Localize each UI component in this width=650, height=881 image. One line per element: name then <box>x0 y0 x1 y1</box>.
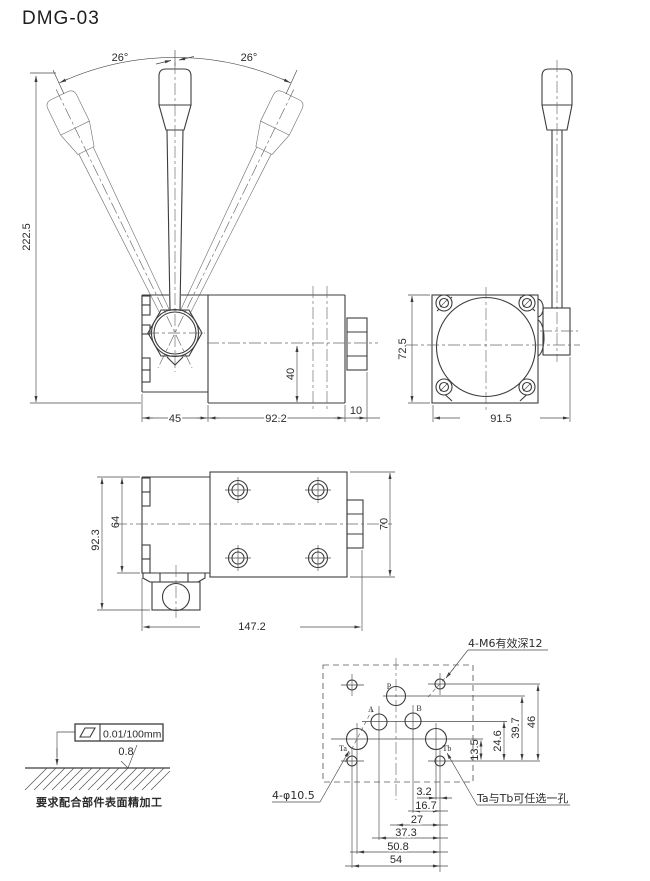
dim-39-7: 39.7 <box>510 717 522 738</box>
page-title: DMG-03 <box>22 8 100 29</box>
top-body <box>115 472 392 618</box>
surface-caption: 要求配合部件表面精加工 <box>36 795 163 809</box>
dim-top-height: 70 <box>350 472 395 577</box>
pattern-dims-vertical: 13.5 24.6 39.7 46 <box>469 685 538 761</box>
front-view: 26° 26° 222.5 <box>21 50 380 425</box>
dim-40: 40 <box>285 368 297 380</box>
dim-top-length: 147.2 <box>142 550 362 633</box>
note-m6-threads: 4-M6有效深12 <box>468 636 542 650</box>
port-label-a: A <box>368 705 374 714</box>
pattern-holes <box>347 679 447 766</box>
dim-45: 45 <box>169 413 181 425</box>
end-hex-fitting <box>347 318 367 370</box>
dim-64: 64 <box>110 516 122 528</box>
dim-overall-height: 222.5 <box>21 73 141 403</box>
dim-92-2: 92.2 <box>265 413 286 425</box>
angle-label-left: 26° <box>112 52 129 64</box>
note-ta-tb: Ta与Tb可任选一孔 <box>476 792 568 805</box>
top-view: 92.3 64 70 147.2 <box>90 472 395 633</box>
port-label-ta: Ta <box>339 744 347 753</box>
side-lever-mount <box>543 308 570 355</box>
mounting-pattern: P A B Ta Tb 13.5 24.6 39.7 46 3.2 16.7 2 <box>272 636 570 872</box>
surface-finish-note: 0.01/100mm 0.8 要求配合部件表面精加工 <box>25 724 170 809</box>
dim-side-width: 91.5 <box>433 357 570 425</box>
note-phi-holes: 4-φ10.5 <box>272 789 315 802</box>
pattern-dims-horizontal: 3.2 16.7 27 37.3 50.8 54 <box>345 786 452 866</box>
front-body <box>142 286 378 411</box>
lever-center <box>159 62 191 372</box>
drawing-page: DMG-03 <box>0 0 650 881</box>
dim-side-height: 72.5 <box>397 295 430 403</box>
flatness-icon <box>80 728 95 737</box>
dim-port-depth: 40 <box>285 346 297 402</box>
dim-54: 54 <box>390 854 402 866</box>
dim-24-6: 24.6 <box>492 730 504 751</box>
side-body <box>406 287 580 411</box>
side-lever <box>542 60 572 362</box>
angle-label-right: 26° <box>241 52 258 64</box>
dim-37-3: 37.3 <box>395 827 416 839</box>
dim-147-2: 147.2 <box>238 621 266 633</box>
mounting-face-outline <box>323 665 473 782</box>
dim-16-7: 16.7 <box>415 800 436 812</box>
dim-70: 70 <box>379 518 391 530</box>
flatness-value: 0.01/100mm <box>103 729 162 741</box>
side-view: 72.5 91.5 <box>397 60 580 425</box>
port-label-tb: Tb <box>443 744 452 753</box>
dim-front-bottom: 45 92.2 10 <box>142 372 380 425</box>
dim-3-2: 3.2 <box>416 786 431 798</box>
dim-46: 46 <box>526 716 538 728</box>
port-label-b: B <box>416 704 421 713</box>
dim-92-3: 92.3 <box>90 529 102 550</box>
hatching <box>25 768 170 790</box>
dim-222-5: 222.5 <box>21 223 33 251</box>
dim-top-overall: 92.3 <box>90 477 150 610</box>
dim-50-8: 50.8 <box>387 841 408 853</box>
dim-13-5: 13.5 <box>469 739 481 760</box>
dim-91-5: 91.5 <box>490 413 511 425</box>
dim-10: 10 <box>350 405 362 417</box>
dim-top-block: 64 <box>110 478 140 573</box>
roughness-value: 0.8 <box>118 746 133 758</box>
dim-27: 27 <box>411 814 423 826</box>
dim-72-5: 72.5 <box>397 338 409 359</box>
port-label-p: P <box>387 682 392 691</box>
technical-drawing: DMG-03 <box>0 0 650 881</box>
